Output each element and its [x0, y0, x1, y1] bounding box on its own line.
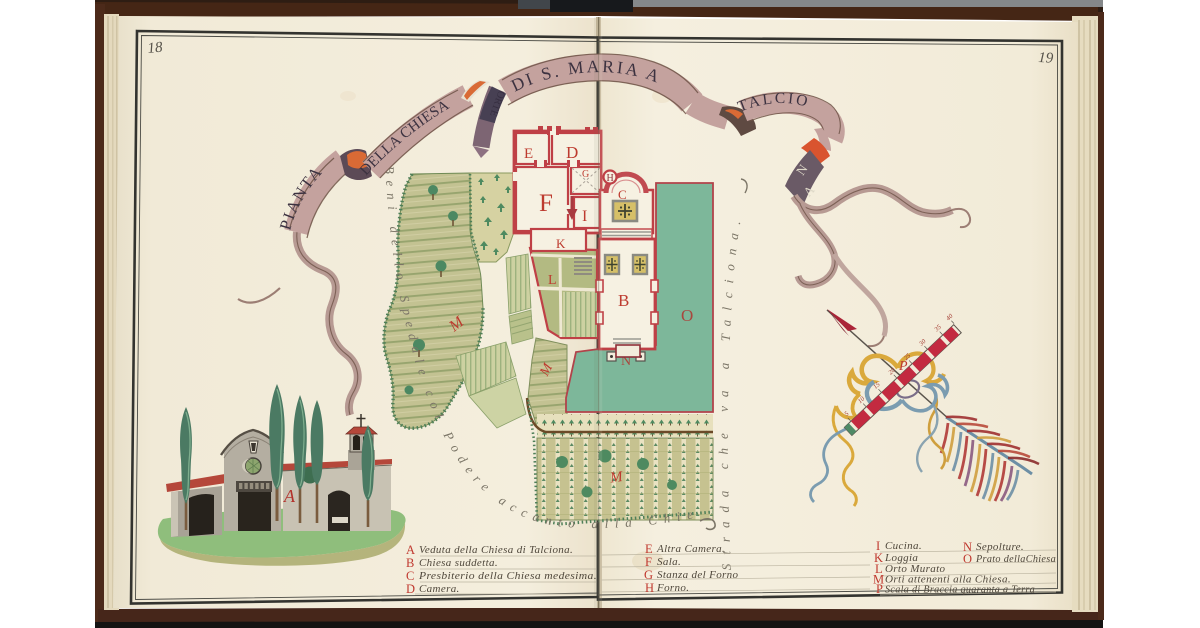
- svg-text:Cucina.: Cucina.: [885, 540, 922, 552]
- svg-text:O: O: [963, 552, 972, 566]
- svg-text:D: D: [566, 143, 578, 162]
- svg-text:O: O: [681, 306, 693, 325]
- svg-text:Sala.: Sala.: [657, 556, 681, 568]
- svg-text:A: A: [406, 543, 415, 557]
- svg-text:G: G: [644, 568, 653, 582]
- svg-text:Stanza del Forno: Stanza del Forno: [657, 569, 739, 581]
- svg-text:Camera.: Camera.: [419, 583, 460, 595]
- svg-text:E: E: [645, 542, 653, 556]
- svg-text:Scala di Braccia quaranta a Te: Scala di Braccia quaranta a Terra: [885, 584, 1035, 596]
- svg-text:Prato dellaChiesa: Prato dellaChiesa: [975, 553, 1056, 565]
- svg-text:B: B: [618, 291, 629, 310]
- svg-text:Altra Camera.: Altra Camera.: [656, 543, 725, 555]
- svg-text:G: G: [582, 169, 589, 180]
- svg-text:19: 19: [1038, 50, 1054, 67]
- svg-text:L: L: [548, 273, 557, 288]
- svg-text:B: B: [406, 556, 415, 570]
- svg-text:F: F: [645, 555, 652, 569]
- svg-text:Chiesa suddetta.: Chiesa suddetta.: [419, 557, 498, 569]
- svg-text:I: I: [582, 208, 587, 225]
- svg-text:K: K: [556, 236, 566, 251]
- svg-text:P: P: [876, 582, 883, 596]
- svg-text:A: A: [283, 486, 296, 506]
- svg-text:H: H: [645, 581, 654, 595]
- svg-text:D: D: [406, 582, 415, 596]
- svg-text:C: C: [618, 187, 627, 202]
- svg-text:P: P: [898, 359, 908, 374]
- svg-text:Presbiterio della Chiesa medes: Presbiterio della Chiesa medesima.: [418, 570, 597, 582]
- svg-text:Sepolture.: Sepolture.: [976, 541, 1024, 553]
- svg-text:Veduta della Chiesa di Talcion: Veduta della Chiesa di Talciona.: [419, 544, 573, 556]
- svg-text:F: F: [539, 190, 553, 217]
- svg-text:Forno.: Forno.: [656, 582, 689, 594]
- svg-text:18: 18: [147, 39, 164, 57]
- svg-text:C: C: [406, 569, 415, 583]
- svg-text:E: E: [524, 146, 533, 162]
- svg-text:H: H: [607, 173, 614, 184]
